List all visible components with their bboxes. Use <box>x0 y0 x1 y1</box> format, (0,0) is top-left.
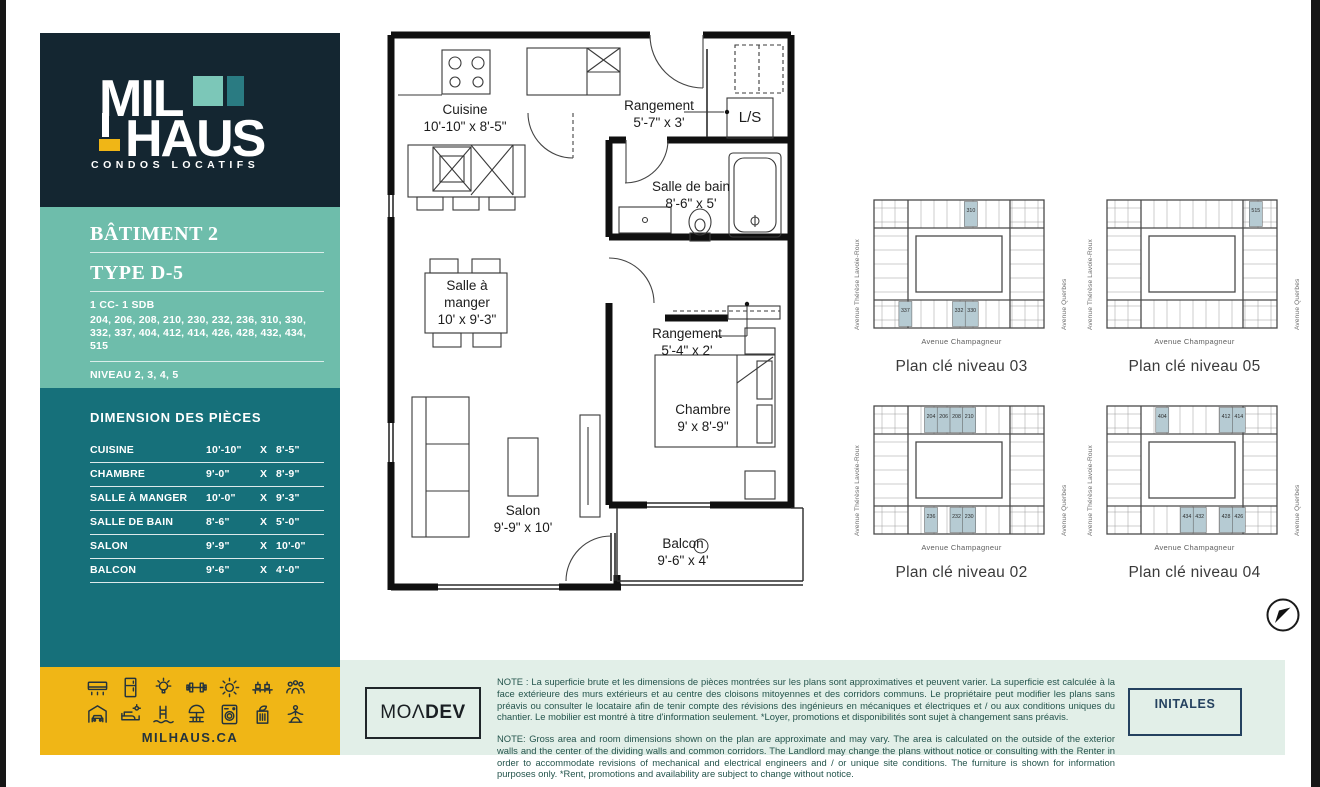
room-label-rangement-bas: Rangement 5'-4" x 2' <box>652 325 722 359</box>
logo-tagline: CONDOS LOCATIFS <box>91 159 291 171</box>
room-label-salle-a-manger: Salle à manger 10' x 9'-3" <box>428 277 506 328</box>
svg-text:432: 432 <box>1195 514 1204 520</box>
indoor-parking-icon <box>86 703 109 726</box>
sun-icon <box>218 676 241 699</box>
room-label-cuisine: Cuisine 10'-10" x 8'-5" <box>423 101 506 135</box>
street-label-bottom: Avenue Champagneur <box>845 543 1078 552</box>
street-label-left: Avenue Thérèse Lavoie-Roux <box>854 404 861 536</box>
level-label: NIVEAU 2, 3, 4, 5 <box>90 369 324 382</box>
room-label-buanderie: L/S <box>739 109 762 126</box>
keyplan-niveau-05: 515Avenue Thérèse Lavoie-RouxAvenue Quer… <box>1078 190 1311 395</box>
svg-text:337: 337 <box>901 308 910 314</box>
room-label-salle-de-bain: Salle de bain 8'-6" x 5' <box>652 178 730 212</box>
svg-text:210: 210 <box>965 414 974 420</box>
type-title: TYPE D-5 <box>90 260 324 291</box>
logo-square-dark-icon <box>227 76 244 106</box>
dimensions-table: CUISINE10'-10"X8'-5"CHAMBRE9'-0"X8'-9"SA… <box>90 439 324 583</box>
street-label-right: Avenue Querbes <box>1294 198 1301 330</box>
svg-text:515: 515 <box>1251 208 1260 214</box>
note-english: NOTE: Gross area and room dimensions sho… <box>497 733 1115 779</box>
street-label-bottom: Avenue Champagneur <box>845 337 1078 346</box>
sidebar: MIL HAUS CONDOS LOCATIFS BÂTIMENT 2 TYPE… <box>40 33 340 755</box>
sidebar-amenities-panel: MILHAUS.CA <box>40 667 340 755</box>
keyplan-building: 515 <box>1105 198 1279 330</box>
divider <box>90 291 324 292</box>
refrigerator-icon <box>119 676 142 699</box>
sidebar-dimensions-panel: DIMENSION DES PIÈCES CUISINE10'-10"X8'-5… <box>40 388 340 667</box>
yoga-room-icon <box>284 703 307 726</box>
room-label-chambre: Chambre 9' x 8'-9" <box>675 401 731 435</box>
building-title: BÂTIMENT 2 <box>90 221 324 252</box>
dimension-row: CUISINE10'-10"X8'-5" <box>90 439 324 463</box>
note-french: NOTE : La superficie brute et les dimens… <box>497 676 1115 722</box>
keyplan-title: Plan clé niveau 05 <box>1078 358 1311 376</box>
website-link[interactable]: MILHAUS.CA <box>40 730 340 745</box>
dimension-row: CHAMBRE9'-0"X8'-9" <box>90 463 324 487</box>
street-label-bottom: Avenue Champagneur <box>1078 337 1311 346</box>
street-label-right: Avenue Querbes <box>1294 404 1301 536</box>
unit-config: 1 CC- 1 SDB <box>90 299 324 312</box>
keyplan-niveau-03: 310337332330Avenue Thérèse Lavoie-RouxAv… <box>845 190 1078 395</box>
svg-text:404: 404 <box>1158 414 1167 420</box>
community-people-icon <box>284 676 307 699</box>
keyplan-title: Plan clé niveau 03 <box>845 358 1078 376</box>
svg-text:232: 232 <box>952 514 961 520</box>
initials-field[interactable]: INITALES <box>1128 688 1242 736</box>
street-label-bottom: Avenue Champagneur <box>1078 543 1311 552</box>
logo-square-yellow-icon <box>99 139 120 151</box>
amenity-icons <box>86 676 308 726</box>
milhaus-logo: MIL HAUS <box>99 73 281 159</box>
svg-text:414: 414 <box>1234 414 1243 420</box>
svg-text:426: 426 <box>1234 514 1243 520</box>
street-label-right: Avenue Querbes <box>1061 198 1068 330</box>
lightbulb-icon <box>152 676 175 699</box>
svg-text:330: 330 <box>967 308 976 314</box>
right-edge-bar <box>1311 0 1320 787</box>
north-arrow-icon <box>1264 596 1302 634</box>
dimension-row: BALCON9'-6"X4'-0" <box>90 559 324 583</box>
street-label-left: Avenue Thérèse Lavoie-Roux <box>1087 198 1094 330</box>
logo-text-haus: HAUS <box>125 113 264 165</box>
svg-text:434: 434 <box>1182 514 1191 520</box>
street-label-left: Avenue Thérèse Lavoie-Roux <box>1087 404 1094 536</box>
floorplan: Cuisine 10'-10" x 8'-5" Rangement 5'-7" … <box>383 25 815 625</box>
lounge-terrace-icon <box>119 703 142 726</box>
dimension-row: SALLE À MANGER10'-0"X9'-3" <box>90 487 324 511</box>
coworking-desks-icon <box>251 676 274 699</box>
street-label-left: Avenue Thérèse Lavoie-Roux <box>854 198 861 330</box>
room-label-rangement-haut: Rangement 5'-7" x 3' <box>624 97 694 131</box>
svg-text:204: 204 <box>927 414 936 420</box>
keyplan-building: 404412414434432428426 <box>1105 404 1279 536</box>
mondev-logo: MOΛDEV <box>365 687 481 739</box>
sidebar-brand-panel: MIL HAUS CONDOS LOCATIFS <box>40 33 340 207</box>
patio-umbrella-icon <box>185 703 208 726</box>
dimensions-title: DIMENSION DES PIÈCES <box>90 410 324 425</box>
svg-text:230: 230 <box>965 514 974 520</box>
street-label-right: Avenue Querbes <box>1061 404 1068 536</box>
sidebar-summary-panel: BÂTIMENT 2 TYPE D-5 1 CC- 1 SDB 204, 206… <box>40 207 340 388</box>
left-edge-bar <box>0 0 6 787</box>
divider <box>90 361 324 362</box>
recycling-room-icon <box>251 703 274 726</box>
page: MIL HAUS CONDOS LOCATIFS BÂTIMENT 2 TYPE… <box>0 0 1320 787</box>
unit-numbers: 204, 206, 208, 210, 230, 232, 236, 310, … <box>90 314 324 353</box>
dimension-row: SALLE DE BAIN8'-6"X5'-0" <box>90 511 324 535</box>
svg-text:332: 332 <box>955 308 964 314</box>
svg-text:412: 412 <box>1222 414 1231 420</box>
legal-note-band: MOΛDEV NOTE : La superficie brute et les… <box>340 660 1285 755</box>
keyplan-title: Plan clé niveau 04 <box>1078 564 1311 582</box>
keyplan-niveau-02: 204206208210236232230Avenue Thérèse Lavo… <box>845 396 1078 601</box>
svg-text:428: 428 <box>1222 514 1231 520</box>
gym-dumbbell-icon <box>185 676 208 699</box>
air-conditioner-icon <box>86 676 109 699</box>
dimension-row: SALON9'-9"X10'-0" <box>90 535 324 559</box>
laundry-machine-icon <box>218 703 241 726</box>
svg-text:236: 236 <box>927 514 936 520</box>
logo-square-light-icon <box>193 76 223 106</box>
room-label-salon: Salon 9'-9" x 10' <box>494 502 553 536</box>
keyplan-niveau-04: 404412414434432428426Avenue Thérèse Lavo… <box>1078 396 1311 601</box>
logo-bar-icon <box>102 113 109 137</box>
svg-text:310: 310 <box>966 208 975 214</box>
svg-text:208: 208 <box>952 414 961 420</box>
keyplan-building: 204206208210236232230 <box>872 404 1046 536</box>
pool-ladder-icon <box>152 703 175 726</box>
divider <box>90 252 324 253</box>
svg-text:206: 206 <box>939 414 948 420</box>
keyplan-title: Plan clé niveau 02 <box>845 564 1078 582</box>
keyplan-building: 310337332330 <box>872 198 1046 330</box>
room-label-balcon: Balcon 9'-6" x 4' <box>657 535 708 569</box>
